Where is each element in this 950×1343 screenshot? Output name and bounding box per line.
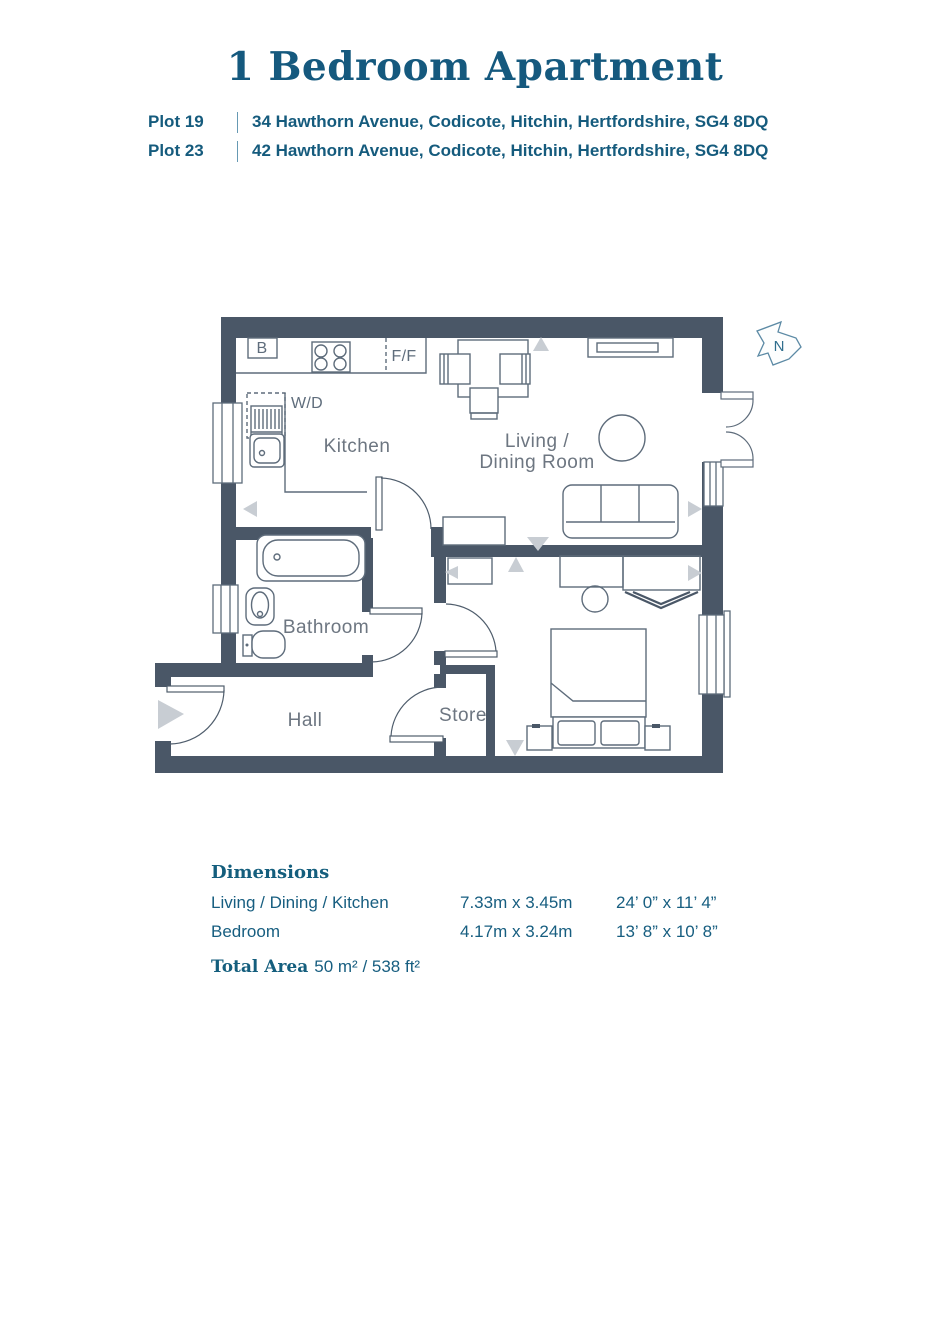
total-area-value: 50 m² / 538 ft² — [314, 957, 420, 976]
plot-row-23: Plot 23 42 Hawthorn Avenue, Codicote, Hi… — [148, 139, 768, 163]
round-table-icon — [599, 415, 645, 461]
french-doors-icon — [721, 392, 753, 467]
dimension-row: Living / Dining / Kitchen 7.33m x 3.45m … — [211, 893, 771, 922]
total-area-label: Total Area — [211, 957, 308, 977]
total-area: Total Area50 m² / 538 ft² — [211, 957, 771, 977]
plot-address: 42 Hawthorn Avenue, Codicote, Hitchin, H… — [252, 141, 768, 161]
label-boiler: B — [257, 340, 268, 357]
plot-divider — [237, 141, 238, 162]
label-living-1: Living / — [505, 431, 569, 452]
cabinet-icon — [443, 517, 505, 545]
door-store-icon — [390, 687, 443, 742]
toilet-icon — [243, 631, 285, 658]
plot-number: Plot 19 — [148, 112, 237, 132]
dimension-row: Bedroom 4.17m x 3.24m 13’ 8” x 10’ 8” — [211, 922, 771, 951]
dimensions-section: Dimensions Living / Dining / Kitchen 7.3… — [211, 862, 771, 977]
label-bathroom: Bathroom — [283, 617, 369, 638]
dining-chair-icon — [470, 388, 498, 413]
bathroom-fixtures — [243, 535, 365, 658]
plot-row-19: Plot 19 34 Hawthorn Avenue, Codicote, Hi… — [148, 110, 768, 134]
bedside-table-icon — [645, 726, 670, 750]
sink-icon — [250, 434, 284, 467]
dimension-room: Living / Dining / Kitchen — [211, 893, 389, 913]
floor-plan: Kitchen Living / Dining Room Bathroom Ha… — [140, 300, 820, 790]
plot-divider — [237, 112, 238, 133]
window-bedroom-icon — [699, 611, 730, 697]
window-bathroom-icon — [213, 585, 238, 633]
label-washer-dryer: W/D — [291, 395, 323, 412]
label-kitchen: Kitchen — [324, 436, 391, 457]
dimension-room: Bedroom — [211, 922, 280, 942]
north-label: N — [774, 338, 785, 355]
dimension-imperial: 24’ 0” x 11’ 4” — [616, 893, 716, 913]
door-kitchen-icon — [376, 477, 431, 530]
tv-unit-icon — [588, 338, 673, 357]
dimension-metric: 4.17m x 3.24m — [460, 922, 572, 942]
bed-icon — [551, 629, 646, 717]
dimension-imperial: 13’ 8” x 10’ 8” — [616, 922, 718, 942]
label-living-2: Dining Room — [479, 452, 594, 473]
bedside-table-icon — [527, 726, 552, 750]
wardrobe-icon — [560, 556, 623, 587]
plot-address: 34 Hawthorn Avenue, Codicote, Hitchin, H… — [252, 112, 768, 132]
stool-icon — [582, 586, 608, 612]
window-kitchen-icon — [213, 403, 242, 483]
north-arrow-icon: N — [757, 322, 801, 365]
label-store: Store — [439, 705, 487, 726]
sofa-icon — [563, 485, 678, 538]
page-title: 1 Bedroom Apartment — [0, 44, 950, 90]
window-living-icon — [704, 462, 723, 506]
dimension-metric: 7.33m x 3.45m — [460, 893, 572, 913]
door-bathroom-icon — [370, 608, 422, 662]
dimensions-heading: Dimensions — [211, 862, 771, 883]
plot-number: Plot 23 — [148, 141, 237, 161]
door-bedroom-icon — [445, 604, 497, 657]
bath-icon — [257, 535, 365, 581]
label-hall: Hall — [288, 710, 323, 731]
label-fridge-freezer: F/F — [392, 348, 417, 365]
basin-icon — [246, 588, 274, 625]
entrance-arrow-icon — [158, 700, 184, 729]
